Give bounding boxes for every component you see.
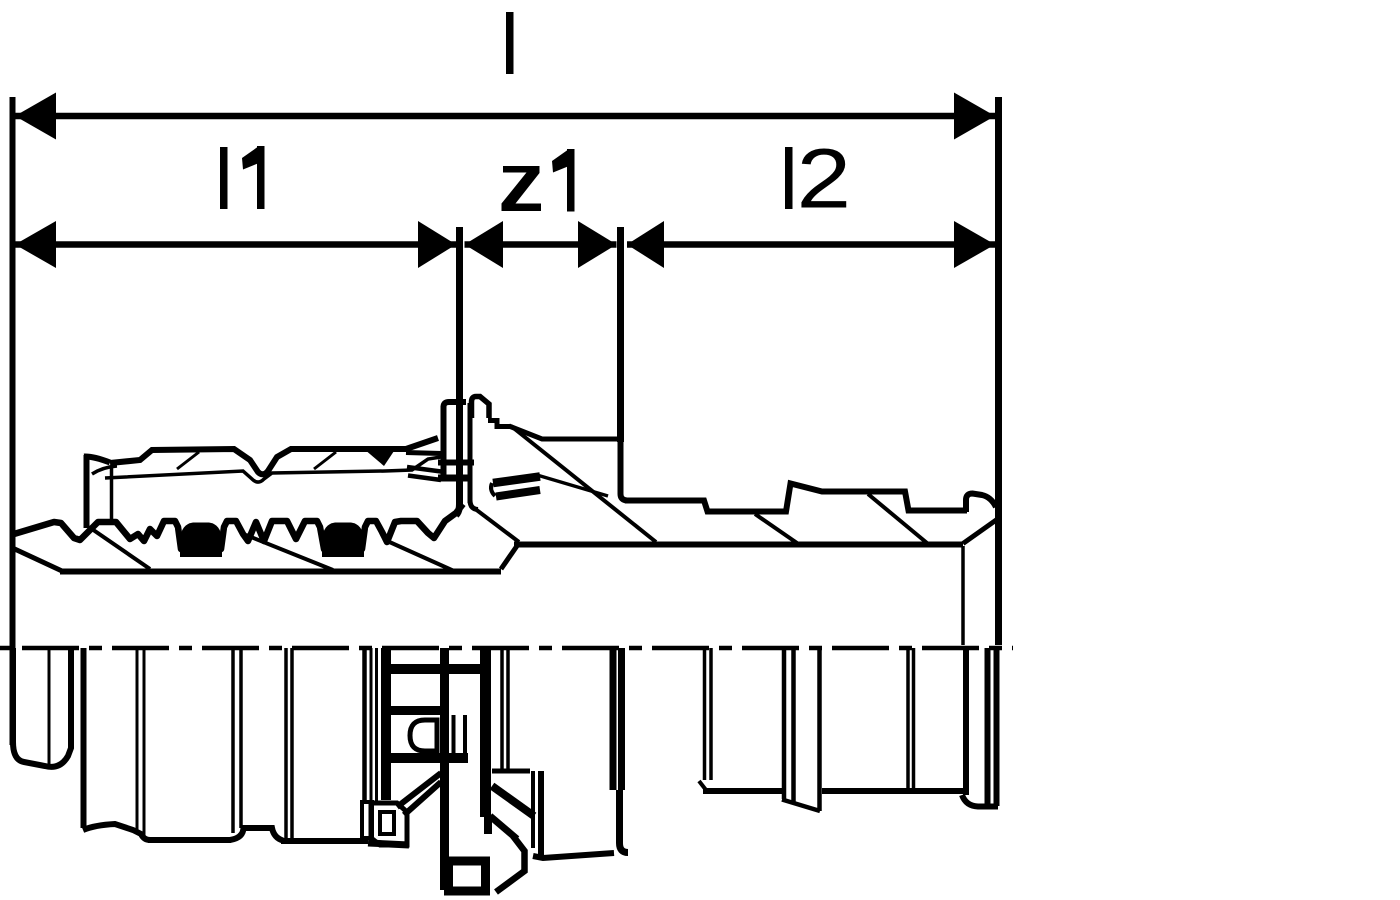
- svg-text:2: 2: [797, 132, 852, 226]
